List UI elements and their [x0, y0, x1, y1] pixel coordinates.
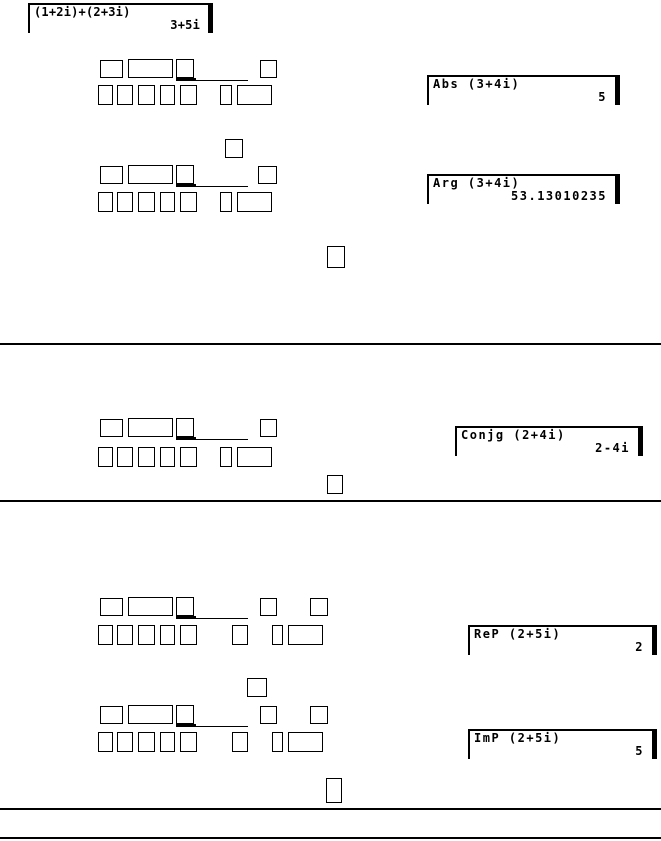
calculator-key-box — [232, 732, 248, 752]
calculator-key-box — [272, 732, 283, 752]
calculator-key-box — [160, 625, 175, 645]
calculator-key-box — [117, 192, 133, 212]
lcd-expression: Conjg (2+4i) — [457, 428, 638, 442]
manual-page: (1+2i)+(2+3i) 3+5i Abs (3+4i) 5 Arg (3+4… — [0, 0, 661, 841]
lcd-result: 2 — [470, 641, 652, 654]
calculator-key-box — [237, 85, 272, 105]
key-label-underline — [176, 616, 196, 619]
calculator-key-box — [327, 475, 343, 494]
calculator-key-box — [180, 447, 197, 467]
calculator-key-box — [258, 166, 277, 184]
calculator-key-box — [100, 706, 123, 724]
calculator-key-box — [160, 85, 175, 105]
calculator-key-box — [176, 59, 194, 78]
calculator-key-box — [220, 447, 232, 467]
calculator-key-box — [128, 705, 173, 724]
calculator-key-box — [160, 192, 175, 212]
calculator-key-box — [288, 625, 323, 645]
calculator-key-box — [180, 192, 197, 212]
calculator-key-box — [272, 625, 283, 645]
calculator-key-box — [260, 419, 277, 437]
calculator-key-box — [176, 165, 194, 184]
calculator-key-box — [128, 59, 173, 78]
calculator-key-box — [225, 139, 243, 158]
calculator-key-box — [138, 625, 155, 645]
lcd-result: 2-4i — [457, 442, 638, 455]
calculator-key-box — [260, 706, 277, 724]
key-label-underline — [176, 184, 196, 187]
lcd-result: 3+5i — [30, 19, 208, 32]
lcd-expression: (1+2i)+(2+3i) — [30, 5, 208, 19]
calculator-key-box — [260, 60, 277, 78]
lcd-expression: Abs (3+4i) — [429, 77, 615, 91]
calculator-key-box — [180, 85, 197, 105]
calculator-key-box — [138, 85, 155, 105]
lcd-expression: ImP (2+5i) — [470, 731, 652, 745]
key-label-underline — [194, 618, 248, 619]
calculator-key-box — [237, 192, 272, 212]
calculator-key-box — [180, 732, 197, 752]
calculator-key-box — [98, 85, 113, 105]
lcd-expression: ReP (2+5i) — [470, 627, 652, 641]
calculator-key-box — [247, 678, 267, 697]
calculator-display-rep: ReP (2+5i) 2 — [468, 625, 657, 655]
section-divider — [0, 837, 661, 839]
calculator-display-imp: ImP (2+5i) 5 — [468, 729, 657, 759]
calculator-key-box — [117, 447, 133, 467]
calculator-key-box — [232, 625, 248, 645]
calculator-key-box — [117, 625, 133, 645]
key-label-underline — [176, 724, 196, 727]
calculator-key-box — [220, 85, 232, 105]
calculator-key-box — [117, 732, 133, 752]
calculator-key-box — [100, 166, 123, 184]
key-label-underline — [194, 439, 248, 440]
calculator-key-box — [98, 447, 113, 467]
calculator-key-box — [98, 732, 113, 752]
calculator-key-box — [288, 732, 323, 752]
calculator-display-abs: Abs (3+4i) 5 — [427, 75, 620, 105]
calculator-key-box — [160, 732, 175, 752]
calculator-display-conjg: Conjg (2+4i) 2-4i — [455, 426, 643, 456]
key-label-underline — [194, 80, 248, 81]
calculator-key-box — [98, 192, 113, 212]
calculator-display-arg: Arg (3+4i) 53.13010235 — [427, 174, 620, 204]
section-divider — [0, 500, 661, 502]
lcd-result: 5 — [470, 745, 652, 758]
calculator-key-box — [176, 705, 194, 724]
calculator-key-box — [128, 418, 173, 437]
lcd-result: 5 — [429, 91, 615, 104]
key-label-underline — [176, 437, 196, 440]
key-label-underline — [194, 186, 248, 187]
lcd-expression: Arg (3+4i) — [429, 176, 615, 190]
calculator-display-sum: (1+2i)+(2+3i) 3+5i — [28, 3, 213, 33]
calculator-key-box — [138, 192, 155, 212]
calculator-key-box — [160, 447, 175, 467]
calculator-key-box — [260, 598, 277, 616]
calculator-key-box — [128, 165, 173, 184]
calculator-key-box — [326, 778, 342, 803]
section-divider — [0, 808, 661, 810]
calculator-key-box — [176, 597, 194, 616]
calculator-key-box — [327, 246, 345, 268]
calculator-key-box — [100, 60, 123, 78]
calculator-key-box — [100, 419, 123, 437]
key-label-underline — [176, 78, 196, 81]
calculator-key-box — [117, 85, 133, 105]
calculator-key-box — [138, 447, 155, 467]
calculator-key-box — [310, 598, 328, 616]
calculator-key-box — [176, 418, 194, 437]
calculator-key-box — [180, 625, 197, 645]
lcd-result: 53.13010235 — [429, 190, 615, 203]
calculator-key-box — [138, 732, 155, 752]
calculator-key-box — [310, 706, 328, 724]
key-label-underline — [194, 726, 248, 727]
calculator-key-box — [237, 447, 272, 467]
calculator-key-box — [128, 597, 173, 616]
section-divider — [0, 343, 661, 345]
calculator-key-box — [98, 625, 113, 645]
calculator-key-box — [220, 192, 232, 212]
calculator-key-box — [100, 598, 123, 616]
